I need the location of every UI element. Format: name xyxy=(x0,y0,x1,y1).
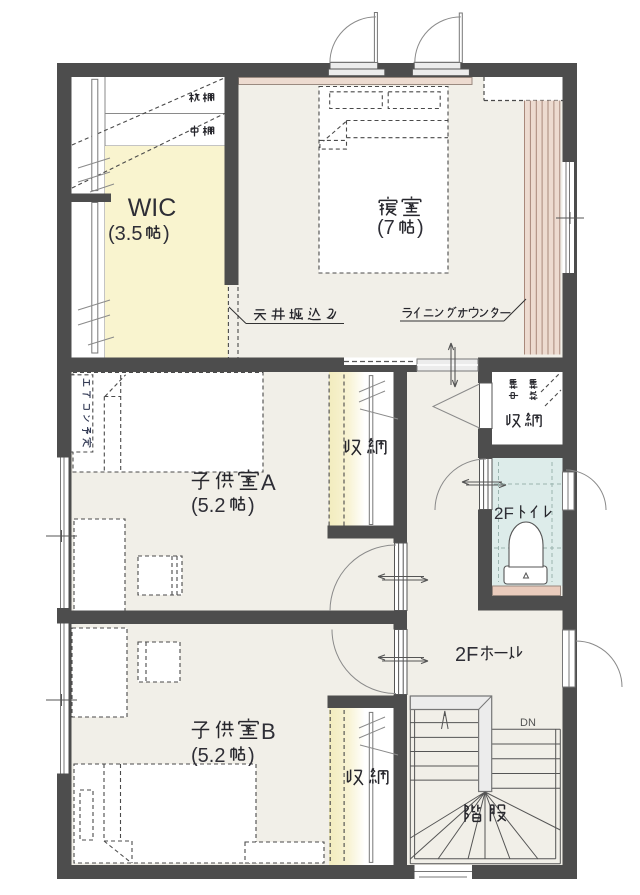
svg-text:B: B xyxy=(261,719,276,744)
svg-text:): ) xyxy=(248,495,255,517)
svg-text:WIC: WIC xyxy=(128,194,177,222)
svg-text:): ) xyxy=(248,745,255,767)
svg-text:2F: 2F xyxy=(455,644,478,666)
svg-text:(5.2: (5.2 xyxy=(191,495,225,517)
svg-text:2F: 2F xyxy=(494,504,514,523)
svg-text:): ) xyxy=(163,223,170,245)
svg-text:(3.5: (3.5 xyxy=(108,223,142,245)
svg-text:A: A xyxy=(261,470,276,495)
svg-text:): ) xyxy=(417,217,424,239)
svg-text:(7: (7 xyxy=(377,217,395,239)
svg-text:(5.2: (5.2 xyxy=(191,745,225,767)
svg-text:DN: DN xyxy=(520,717,536,729)
